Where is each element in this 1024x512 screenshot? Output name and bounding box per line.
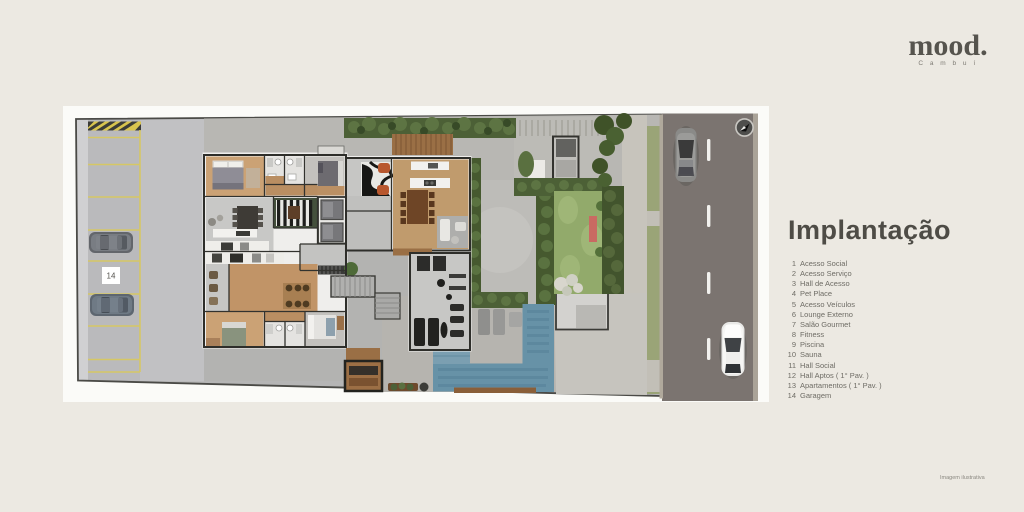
svg-text:14: 14 [107,272,116,281]
